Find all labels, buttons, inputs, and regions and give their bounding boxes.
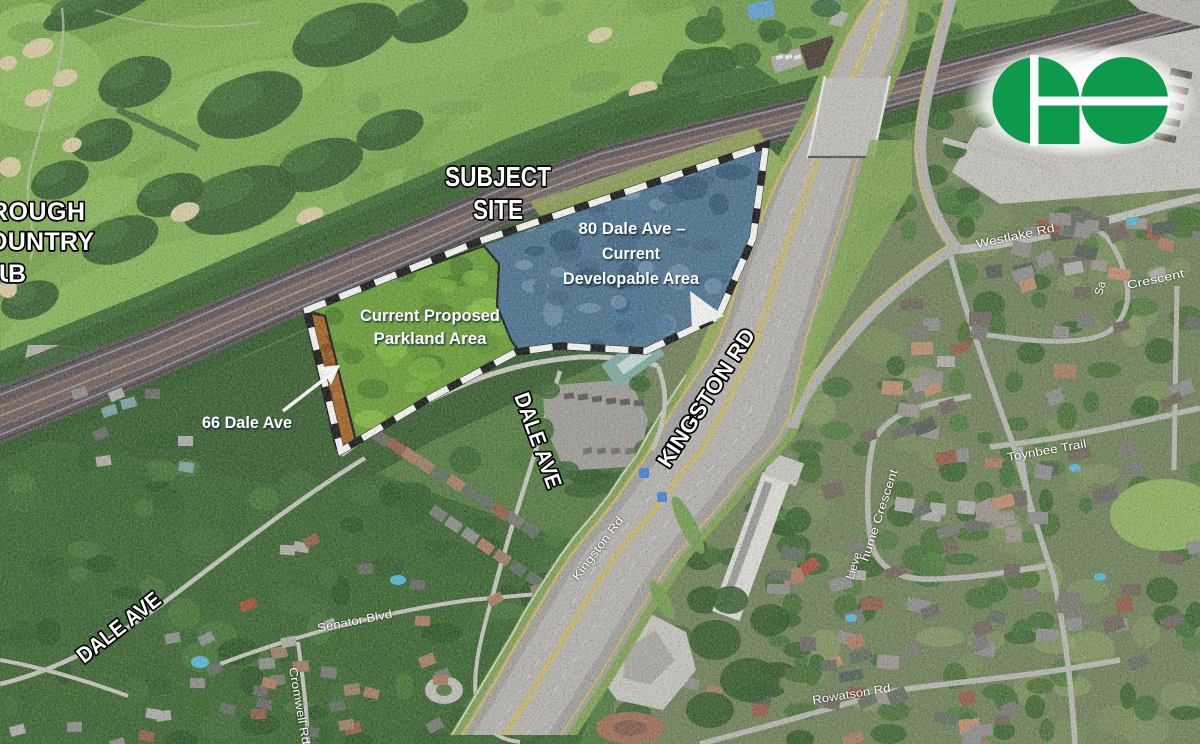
svg-text:Current: Current (602, 244, 660, 263)
svg-text:66 Dale Ave: 66 Dale Ave (202, 413, 292, 432)
svg-text:UB: UB (0, 260, 26, 288)
svg-text:OUNTRY: OUNTRY (0, 228, 94, 256)
svg-text:SUBJECT: SUBJECT (445, 161, 551, 192)
svg-text:80 Dale Ave –: 80 Dale Ave – (579, 219, 686, 238)
svg-text:Parkland Area: Parkland Area (374, 329, 488, 348)
svg-text:Developable Area: Developable Area (563, 269, 700, 288)
svg-text:Current Proposed: Current Proposed (360, 306, 500, 325)
svg-text:ROUGH: ROUGH (0, 198, 85, 226)
svg-text:SITE: SITE (473, 194, 523, 225)
